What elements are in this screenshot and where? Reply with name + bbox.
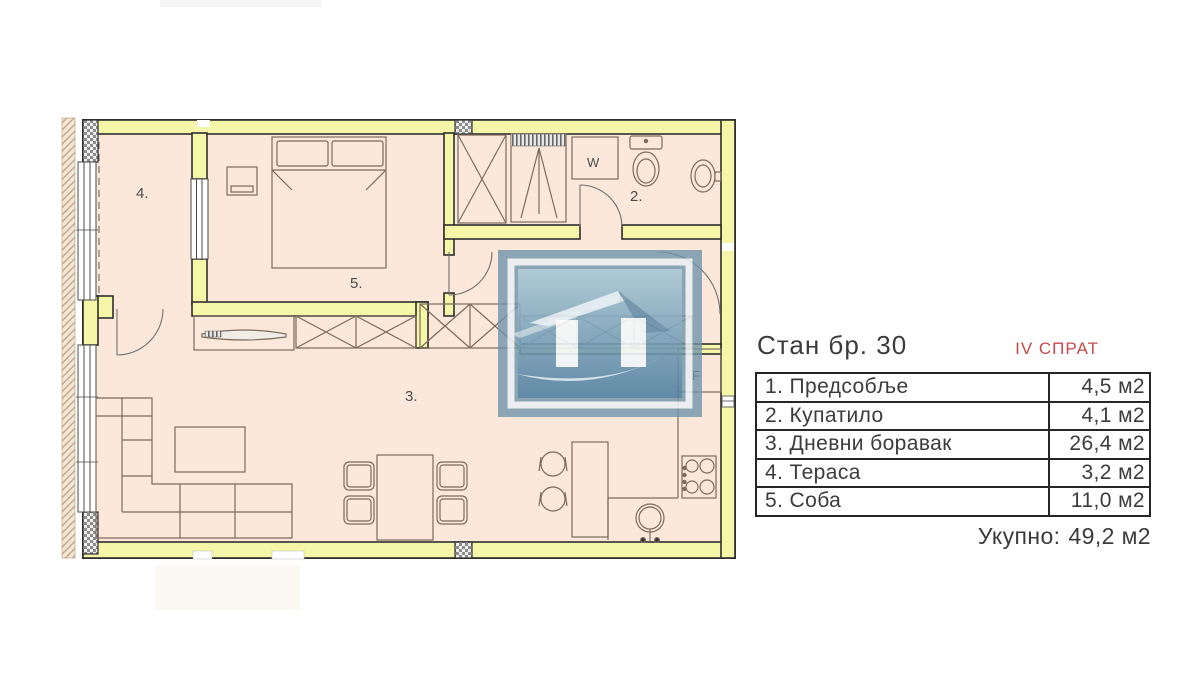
room-area-cell: 4,1 м2 [1050, 403, 1149, 430]
room-area-cell: 26,4 м2 [1050, 431, 1149, 458]
floor-badge: IV СПРАТ [1015, 339, 1151, 359]
bedroom-terrace-window [191, 179, 208, 259]
apartment-info-panel: Стан бр. 30 IV СПРАТ 1. Предсобље 4,5 м2… [755, 330, 1151, 550]
panel-header: Стан бр. 30 IV СПРАТ [755, 330, 1151, 372]
table-row: 1. Предсобље 4,5 м2 [757, 374, 1149, 403]
right-wall-vent [722, 396, 734, 407]
room-area-cell: 3,2 м2 [1050, 460, 1149, 487]
room-label-bathroom: 2. [630, 188, 643, 205]
terrace-window [76, 162, 98, 300]
area-table: 1. Предсобље 4,5 м2 2. Купатило 4,1 м2 3… [755, 372, 1151, 517]
room-label-terrace: 4. [136, 185, 149, 202]
room-name-cell: 3. Дневни боравак [757, 431, 1050, 458]
bottom-wall-slit [272, 551, 304, 559]
total-line: Укупно:49,2 м2 [755, 523, 1151, 550]
room-area-cell: 4,5 м2 [1050, 374, 1149, 401]
ghost-watermark [155, 565, 300, 610]
top-grey-strip [160, 0, 322, 7]
total-label: Укупно: [978, 523, 1061, 549]
room-area-cell: 11,0 м2 [1050, 488, 1149, 515]
floorplan-page: 4. 5. 2. 1. 3. W F Стан бр. 30 IV СПРАТ … [0, 0, 1200, 675]
table-row: 2. Купатило 4,1 м2 [757, 403, 1149, 432]
table-row: 5. Соба 11,0 м2 [757, 488, 1149, 515]
room-name-cell: 4. Тераса [757, 460, 1050, 487]
room-name-cell: 5. Соба [757, 488, 1050, 515]
living-window [76, 345, 98, 512]
room-name-cell: 2. Купатило [757, 403, 1050, 430]
apartment-title: Стан бр. 30 [757, 330, 907, 361]
bottom-wall-slit [193, 551, 212, 559]
top-wall-slit [197, 120, 210, 127]
table-row: 4. Тераса 3,2 м2 [757, 460, 1149, 489]
watermark-logo [498, 250, 702, 417]
room-label-bedroom: 5. [350, 275, 363, 292]
total-value: 49,2 м2 [1068, 523, 1151, 549]
room-label-living: 3. [405, 388, 418, 405]
entry-wall-slit [722, 243, 734, 251]
washer-label: W [587, 155, 600, 170]
room-name-cell: 1. Предсобље [757, 374, 1050, 401]
exterior-insulation-strip [62, 118, 75, 558]
table-row: 3. Дневни боравак 26,4 м2 [757, 431, 1149, 460]
